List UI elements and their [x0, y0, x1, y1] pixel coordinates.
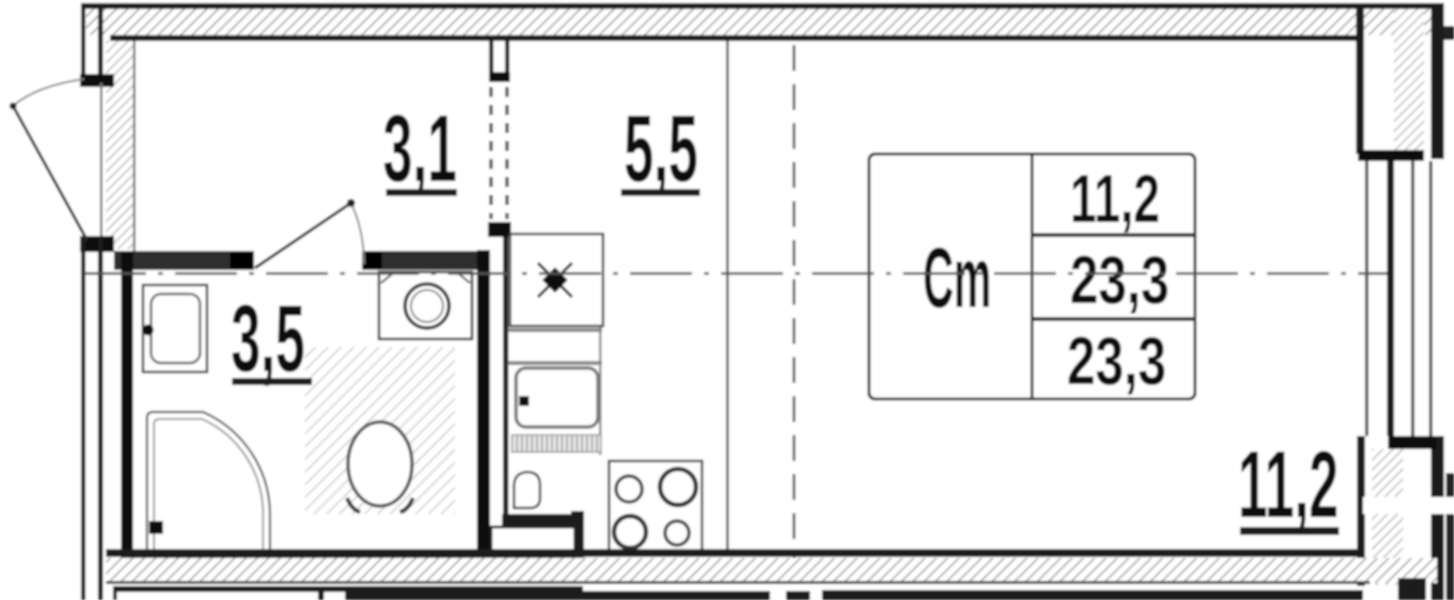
- svg-text:11,2: 11,2: [1070, 162, 1160, 237]
- svg-text:3,5: 3,5: [231, 286, 305, 392]
- svg-text:23,3: 23,3: [1070, 242, 1169, 318]
- svg-text:3,1: 3,1: [383, 96, 457, 202]
- svg-text:5,5: 5,5: [624, 96, 698, 202]
- svg-text:11,2: 11,2: [1238, 432, 1339, 538]
- svg-text:Cm: Cm: [923, 231, 991, 326]
- svg-text:23,3: 23,3: [1067, 323, 1166, 399]
